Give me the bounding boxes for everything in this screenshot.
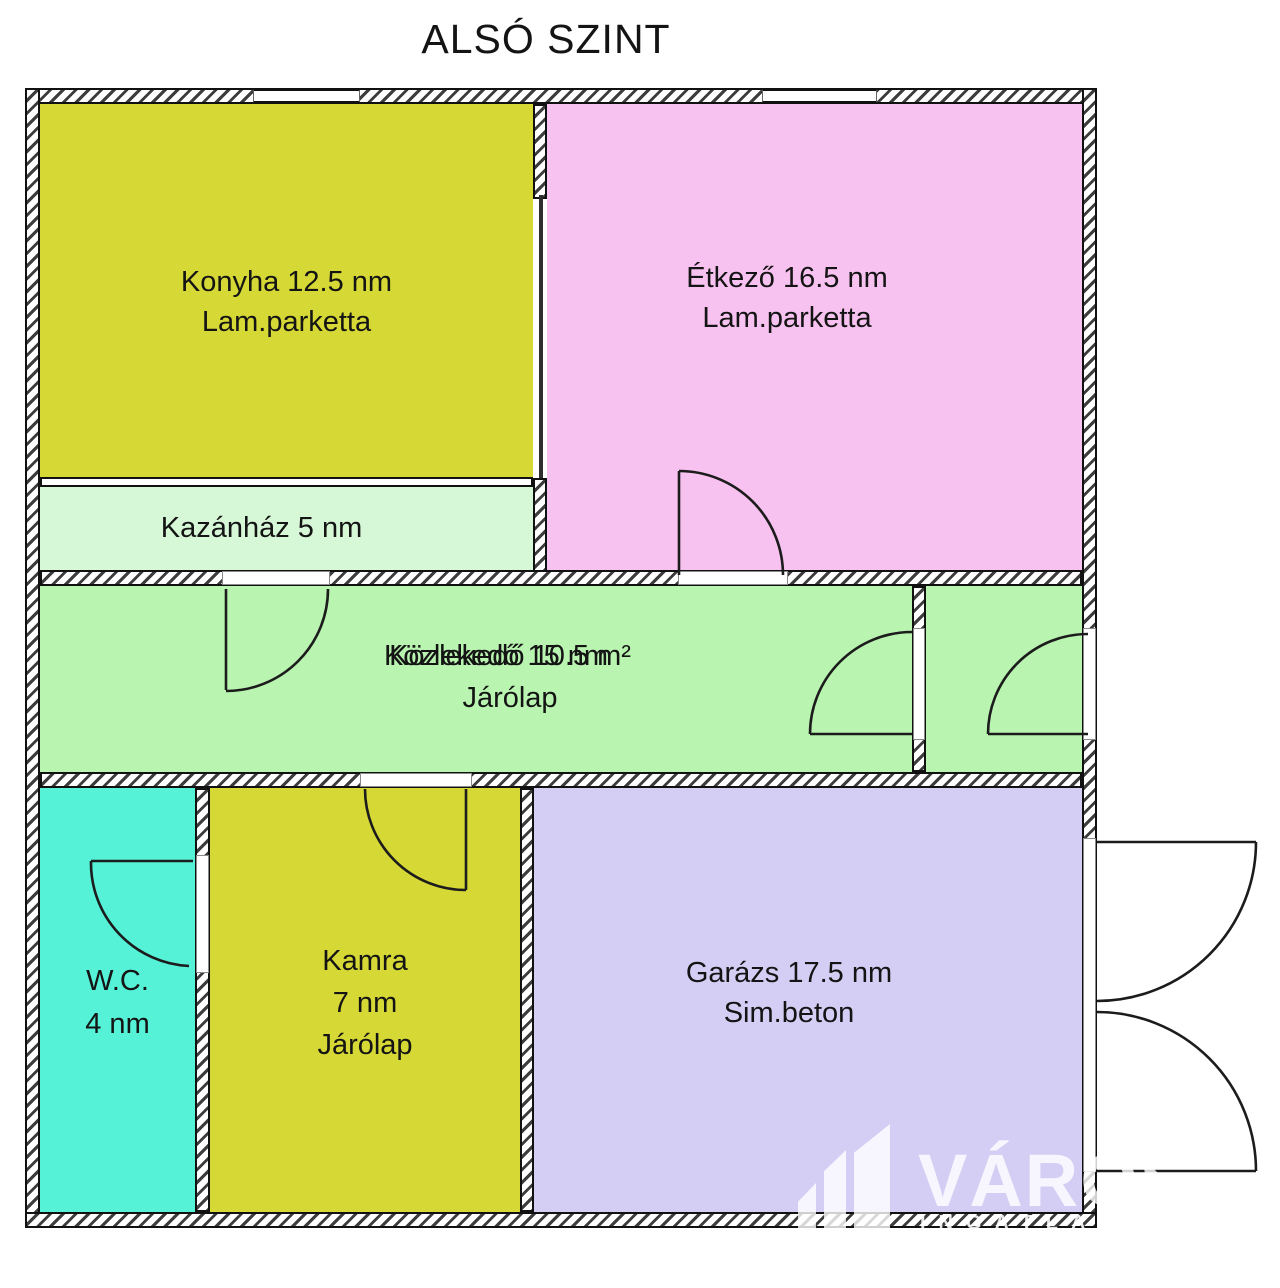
wall-konyha-kazanhaz <box>40 477 533 487</box>
wc-name: W.C. <box>40 960 195 1003</box>
watermark-subtext: INGATLAN <box>920 1212 1126 1235</box>
door-opening-etkezo <box>678 571 788 585</box>
wall-kazanhaz-etkezo <box>533 478 547 572</box>
door-opening-kamra <box>360 773 472 787</box>
kamra-name: Kamra <box>210 940 520 982</box>
partition-konyha-etkezo <box>539 195 543 480</box>
garazs-name-area: Garázs 17.5 nm <box>534 953 1044 993</box>
kamra-label: Kamra 7 nm Járólap <box>210 940 520 1066</box>
plan-title: ALSÓ SZINT <box>0 16 1092 63</box>
wall-kozlekedo-bottom <box>40 772 1082 788</box>
garage-door-top-arc <box>1097 842 1256 1001</box>
window-konyha <box>253 89 360 103</box>
konyha-label: Konyha 12.5 nm Lam.parketta <box>40 262 533 342</box>
watermark-brand-text: VÁROS <box>918 1138 1191 1223</box>
wc-area: 4 nm <box>40 1003 195 1046</box>
room-etkezo <box>547 104 1082 573</box>
garage-door-opening <box>1083 838 1096 1172</box>
kozlekedo-name-area: Közlekedő 15 nm <box>46 636 946 676</box>
wall-kozlekedo-top <box>40 570 1082 586</box>
door-opening-kazanhaz <box>222 571 330 585</box>
etkezo-name-area: Étkező 16.5 nm <box>547 258 1027 298</box>
window-etkezo <box>762 89 877 103</box>
kazanhaz-name-area: Kazánház 5 nm <box>15 508 508 548</box>
kazanhaz-label: Kazánház 5 nm <box>15 508 508 548</box>
wall-kamra-garazs <box>520 788 534 1212</box>
etkezo-flooring: Lam.parketta <box>547 298 1027 338</box>
kamra-area: 7 nm <box>210 982 520 1024</box>
garazs-label: Garázs 17.5 nm Sim.beton <box>534 953 1044 1033</box>
kozlekedo-label: Közlekedő 10.5 m² Közlekedő 15 nm Járóla… <box>60 636 960 720</box>
konyha-flooring: Lam.parketta <box>40 302 533 342</box>
wc-label: W.C. 4 nm <box>40 960 195 1046</box>
wall-outer-left <box>25 88 40 1228</box>
door-opening-wc <box>196 855 209 973</box>
garazs-flooring: Sim.beton <box>534 993 1044 1033</box>
kozlekedo-flooring: Járólap <box>60 678 960 718</box>
door-opening-cell-exterior <box>1083 628 1096 740</box>
wall-konyha-etkezo-stub <box>533 104 547 199</box>
wall-outer-top <box>25 88 1097 104</box>
floorplan-canvas: ALSÓ SZINT <box>0 0 1280 1288</box>
konyha-name-area: Konyha 12.5 nm <box>40 262 533 302</box>
etkezo-label: Étkező 16.5 nm Lam.parketta <box>547 258 1027 338</box>
wall-wc-kamra <box>195 788 210 1212</box>
kamra-flooring: Járólap <box>210 1024 520 1066</box>
